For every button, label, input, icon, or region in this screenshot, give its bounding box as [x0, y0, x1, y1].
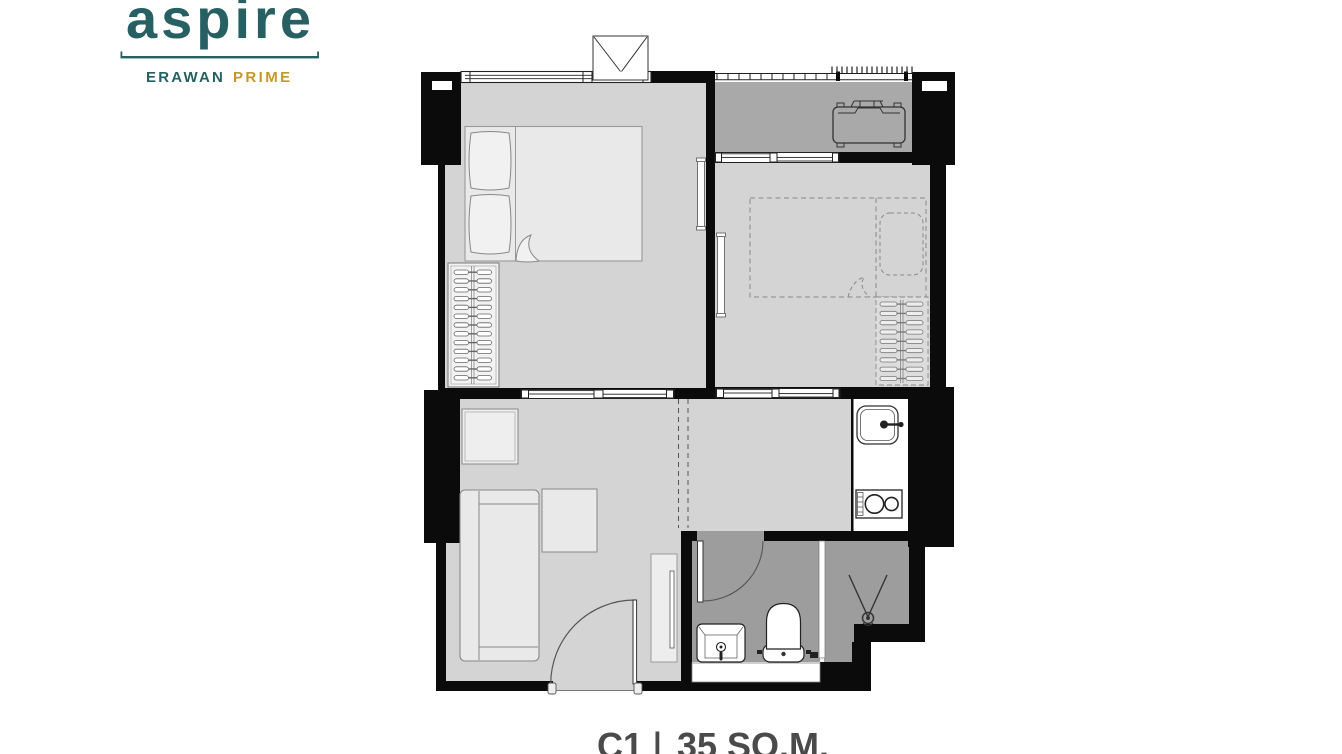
svg-text:ERAWAN: ERAWAN [146, 69, 225, 86]
svg-text:aspire: aspire [126, 0, 315, 50]
svg-text:35 SQ.M.: 35 SQ.M. [677, 725, 829, 754]
svg-text:PRIME: PRIME [233, 69, 293, 86]
svg-text:C1: C1 [597, 725, 643, 754]
